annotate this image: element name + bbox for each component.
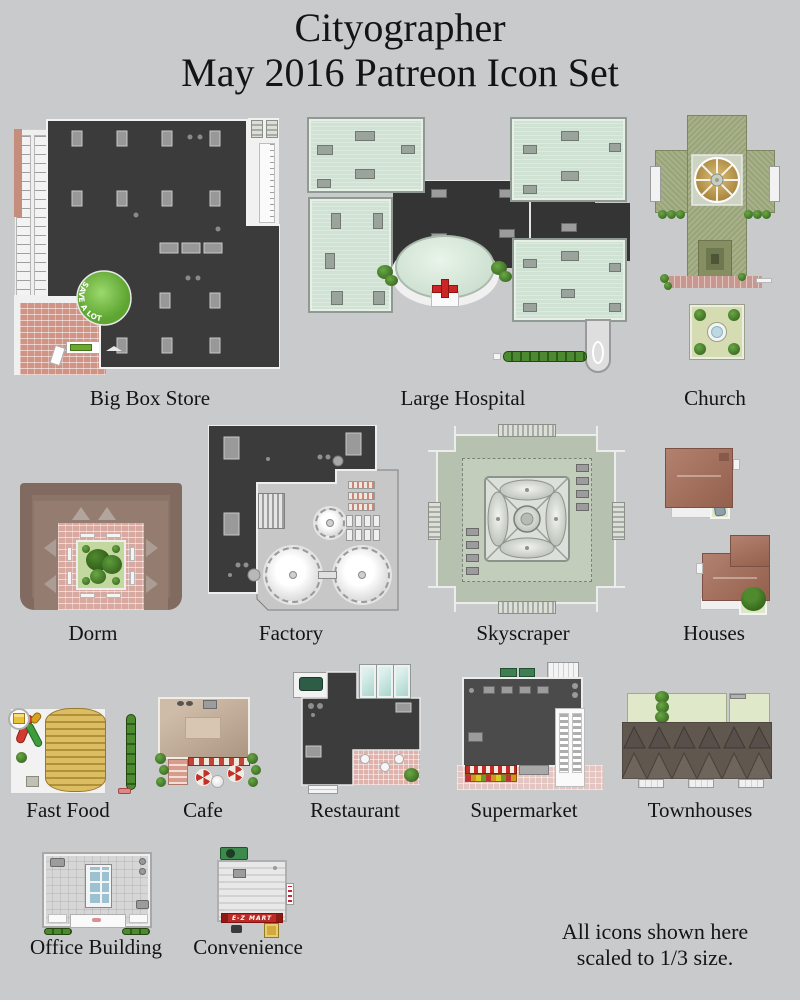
trash-bin <box>26 776 39 787</box>
porch-stoop <box>738 779 764 788</box>
red-cross-v <box>441 279 449 298</box>
scale-note: All icons shown here scaled to 1/3 size. <box>512 919 798 972</box>
label-fast-food: Fast Food <box>0 798 136 823</box>
skylight-panel <box>360 665 376 698</box>
label-cafe: Cafe <box>148 798 258 823</box>
fastfood-gold-roof <box>45 708 106 792</box>
title-line-2: May 2016 Patreon Icon Set <box>0 51 800 96</box>
patio-table <box>394 754 404 764</box>
produce-awning <box>465 765 517 774</box>
label-church: Church <box>640 386 790 411</box>
icon-big-box-store: SAVE A LOT <box>14 113 280 375</box>
patio-umbrella <box>227 765 244 782</box>
corrugated-shed <box>258 493 285 529</box>
church-rose-window <box>691 154 743 206</box>
icon-restaurant <box>290 662 425 795</box>
label-office-building: Office Building <box>6 935 186 960</box>
skylight-panel <box>394 665 410 698</box>
loading-dock <box>547 662 579 678</box>
restaurant-steps <box>308 785 338 794</box>
label-large-hospital: Large Hospital <box>353 386 573 411</box>
large-tank-left <box>265 547 321 603</box>
save-a-lot-sign: SAVE A LOT <box>74 268 134 328</box>
crate-grid <box>346 515 380 541</box>
scale-note-line-1: All icons shown here <box>512 919 798 945</box>
label-factory: Factory <box>211 621 371 646</box>
porch-stoop <box>638 779 664 788</box>
icon-townhouses <box>622 690 772 788</box>
townhouse-roof <box>622 722 772 779</box>
label-big-box-store: Big Box Store <box>40 386 260 411</box>
ez-mart-text: E-Z MART <box>232 915 272 922</box>
label-skyscraper: Skyscraper <box>433 621 613 646</box>
icon-church <box>650 110 780 380</box>
skyscraper-crown <box>484 476 570 562</box>
skyscraper-tab-bottom <box>498 601 556 614</box>
produce-bins <box>465 774 517 782</box>
dumpster <box>519 668 535 677</box>
ez-mart-sign: E-Z MART <box>221 913 283 923</box>
icon-office-building <box>42 852 154 936</box>
house-2-tree <box>741 587 766 611</box>
cart-row <box>572 713 582 773</box>
label-dorm: Dorm <box>18 621 168 646</box>
icon-cafe <box>155 693 260 793</box>
drive-thru-hedge <box>126 714 136 790</box>
skylight-panel <box>377 665 393 698</box>
dumpster <box>500 668 517 677</box>
label-convenience: Convenience <box>168 935 328 960</box>
small-tank <box>315 508 345 538</box>
cafe-awning <box>188 757 250 766</box>
scale-note-line-2: scaled to 1/3 size. <box>512 945 798 971</box>
page-title: Cityographer May 2016 Patreon Icon Set <box>0 6 800 96</box>
skyscraper-tab-left <box>428 502 441 540</box>
icon-sheet: Cityographer May 2016 Patreon Icon Set <box>0 0 800 1000</box>
skyscraper-tab-right <box>612 502 625 540</box>
label-supermarket: Supermarket <box>439 798 609 823</box>
house-2-roof-wing <box>730 535 770 567</box>
icon-convenience: E-Z MART <box>215 845 297 940</box>
label-townhouses: Townhouses <box>615 798 785 823</box>
hedge-row <box>503 351 587 362</box>
large-tank-right <box>334 547 390 603</box>
label-houses: Houses <box>639 621 789 646</box>
porch-stoop <box>688 779 714 788</box>
patio-table <box>360 754 370 764</box>
icon-supermarket <box>455 660 603 790</box>
cafe-steps <box>168 759 188 785</box>
church-porch-right <box>769 166 780 202</box>
church-porch-left <box>650 166 661 202</box>
store-roof <box>14 113 280 375</box>
icon-large-hospital <box>303 113 630 375</box>
office-skylight <box>86 865 111 907</box>
tank-pipe <box>318 571 337 579</box>
icon-dorm <box>20 483 182 610</box>
pallet-stack <box>348 481 375 489</box>
icon-factory <box>208 425 400 612</box>
patio-table <box>380 762 390 772</box>
icon-houses <box>655 445 775 620</box>
church-walkway <box>668 276 762 288</box>
icon-skyscraper <box>428 424 625 614</box>
backyard-left <box>627 693 727 723</box>
title-line-1: Cityographer <box>0 6 800 51</box>
patio-table <box>211 775 224 788</box>
skyscraper-tab-top <box>498 424 556 437</box>
cart-row <box>559 713 569 773</box>
icon-fast-food <box>8 700 136 798</box>
label-restaurant: Restaurant <box>280 798 430 823</box>
patio-umbrella <box>195 769 212 786</box>
